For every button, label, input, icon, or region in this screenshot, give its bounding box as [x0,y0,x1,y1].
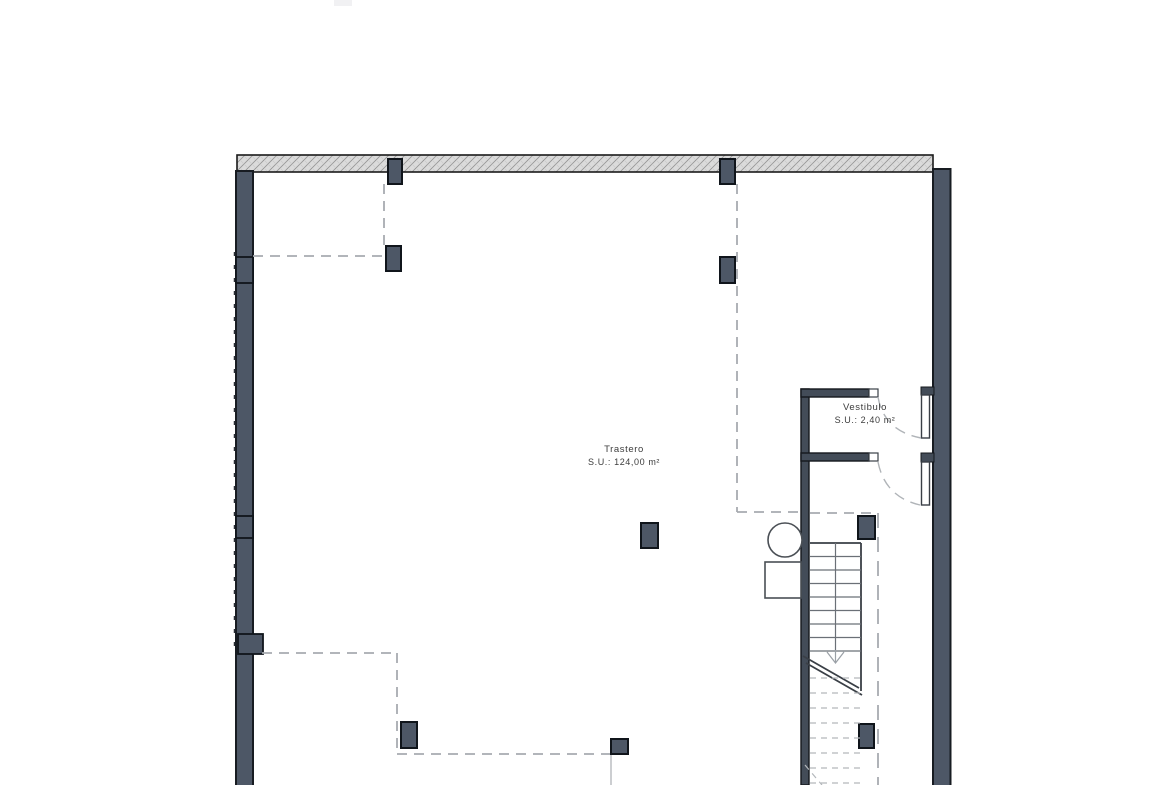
door-swing-arc [878,462,920,505]
door-hinge-block [921,453,934,462]
left-wall-pilaster [236,257,253,283]
square-fixture [765,562,801,598]
left-wall-pilaster [236,516,253,538]
floor-plan-drawing [0,0,1170,785]
vestibule-bottom-wall [801,453,869,461]
room-label-trastero: Trastero S.U.: 124,00 m² [524,443,724,469]
staircase [803,543,862,785]
vestibule-top-wall [801,389,869,397]
floor-plan-canvas: Trastero S.U.: 124,00 m² Vestibulo S.U.:… [0,0,1170,785]
door-leaf [922,462,930,505]
column [859,724,874,748]
column [388,159,402,184]
room-label-vestibulo: Vestibulo S.U.: 2,40 m² [795,401,935,427]
door-jamb [869,453,878,461]
room-area: S.U.: 2,40 m² [795,414,935,427]
column [611,739,628,754]
stair-direction-arrow [827,650,844,663]
room-name: Vestibulo [795,401,935,414]
stairwell-door [878,453,934,505]
round-fixture [768,523,802,557]
stair-treads-below-cut [805,678,861,785]
stair-break-line [806,663,862,695]
column [386,246,401,271]
top-exterior-wall [237,155,933,172]
column [720,159,735,184]
column [720,257,735,283]
room-area: S.U.: 124,00 m² [524,456,724,469]
column [401,722,417,748]
door-jamb [869,389,878,397]
right-exterior-wall [933,169,951,785]
column [858,516,875,539]
room-name: Trastero [524,443,724,456]
stair-break-line [803,656,859,688]
column [641,523,658,548]
left-wall-pilaster [238,634,263,654]
stairwell-left-wall [801,389,809,785]
door-hinge-block [921,387,934,395]
